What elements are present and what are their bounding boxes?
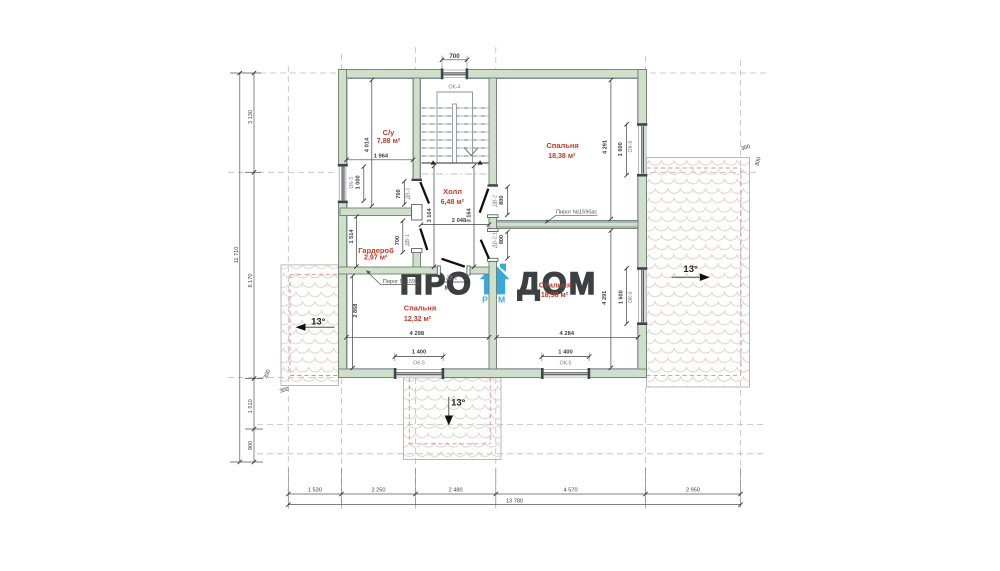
svg-text:4 570: 4 570 [564,488,578,494]
svg-text:3 164: 3 164 [427,208,433,223]
svg-text:Спальня: Спальня [404,304,436,313]
svg-text:1 530: 1 530 [308,488,322,494]
svg-text:ДВ-2: ДВ-2 [493,195,499,207]
svg-text:800: 800 [445,285,454,291]
svg-text:13 780: 13 780 [506,498,523,504]
svg-text:Пирог №159б: Пирог №159б [383,279,419,285]
svg-text:4 298: 4 298 [410,331,425,337]
svg-text:900: 900 [248,441,254,450]
svg-text:7,88 м²: 7,88 м² [377,137,401,145]
svg-text:ДВ-1: ДВ-1 [406,187,412,199]
svg-text:Спальня: Спальня [539,280,571,289]
svg-text:Спальня: Спальня [546,141,578,150]
svg-text:13°: 13° [311,317,326,328]
svg-text:1 400: 1 400 [412,349,427,355]
svg-text:2 480: 2 480 [449,488,463,494]
svg-text:6,48 м²: 6,48 м² [441,198,465,206]
svg-text:1 964: 1 964 [374,153,389,159]
svg-text:2 950: 2 950 [686,488,700,494]
svg-text:4 014: 4 014 [364,137,370,152]
svg-text:1 600: 1 600 [618,142,624,156]
svg-text:1 510: 1 510 [248,399,254,413]
svg-text:ОК-5: ОК-5 [413,360,425,366]
svg-text:800: 800 [499,196,505,205]
svg-text:4 284: 4 284 [560,331,575,337]
svg-text:700: 700 [449,53,460,60]
svg-text:800: 800 [499,235,505,244]
svg-text:12,32 м²: 12,32 м² [404,315,432,323]
svg-text:2,97 м²: 2,97 м² [364,254,388,262]
svg-text:1 000: 1 000 [355,175,361,189]
svg-text:ОК-5: ОК-5 [560,360,572,366]
svg-text:2 868: 2 868 [353,304,359,318]
svg-text:700: 700 [395,236,401,245]
svg-text:700: 700 [396,189,402,198]
svg-text:ОК-3: ОК-3 [349,177,355,189]
svg-text:1 514: 1 514 [349,229,355,244]
svg-text:4 291: 4 291 [602,291,608,305]
svg-text:3 130: 3 130 [248,110,254,124]
svg-text:1 600: 1 600 [618,290,624,304]
svg-text:13°: 13° [451,397,466,408]
svg-text:ОК-4: ОК-4 [448,85,460,91]
svg-text:ДВ-2: ДВ-2 [446,275,458,281]
svg-text:Пирог №159бас: Пирог №159бас [556,209,597,215]
svg-text:11 710: 11 710 [234,247,240,264]
svg-text:Холл: Холл [443,187,462,196]
svg-text:ОК-6: ОК-6 [628,291,634,303]
svg-text:ОК-6: ОК-6 [628,141,634,153]
svg-text:ДВ-2.1: ДВ-2.1 [493,232,499,248]
svg-text:13°: 13° [683,264,698,275]
svg-text:2 048: 2 048 [452,218,467,224]
svg-text:С/у: С/у [383,128,396,137]
svg-text:6 170: 6 170 [248,274,254,288]
svg-text:4 291: 4 291 [602,140,608,154]
svg-text:2 250: 2 250 [372,488,386,494]
svg-text:ДВ-1: ДВ-1 [405,234,411,246]
svg-text:3 164: 3 164 [467,208,473,223]
svg-text:18,38 м²: 18,38 м² [548,152,576,160]
svg-text:1 400: 1 400 [558,349,573,355]
svg-text:18,98 м²: 18,98 м² [541,291,569,299]
